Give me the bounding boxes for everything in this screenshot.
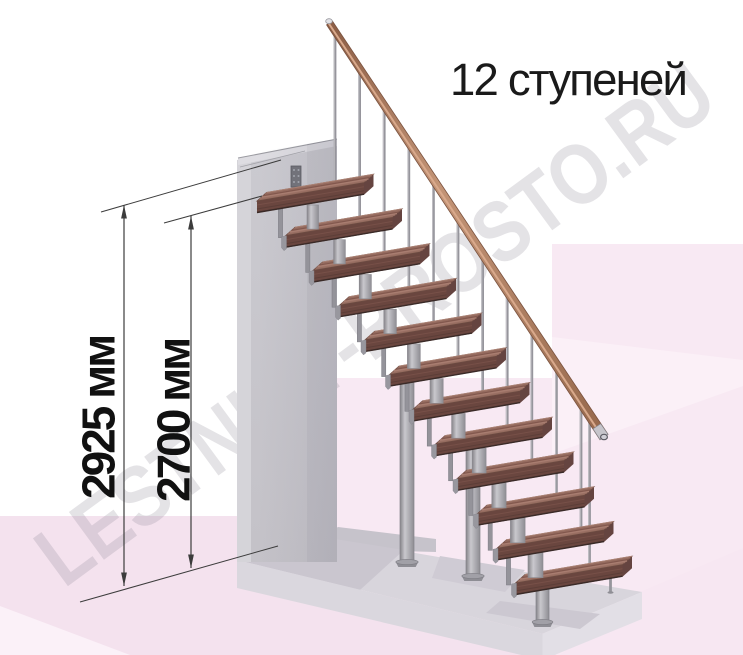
svg-text:12 ступеней: 12 ступеней <box>450 54 686 105</box>
svg-text:2700 мм: 2700 мм <box>148 340 200 502</box>
svg-text:2925 мм: 2925 мм <box>73 337 125 499</box>
